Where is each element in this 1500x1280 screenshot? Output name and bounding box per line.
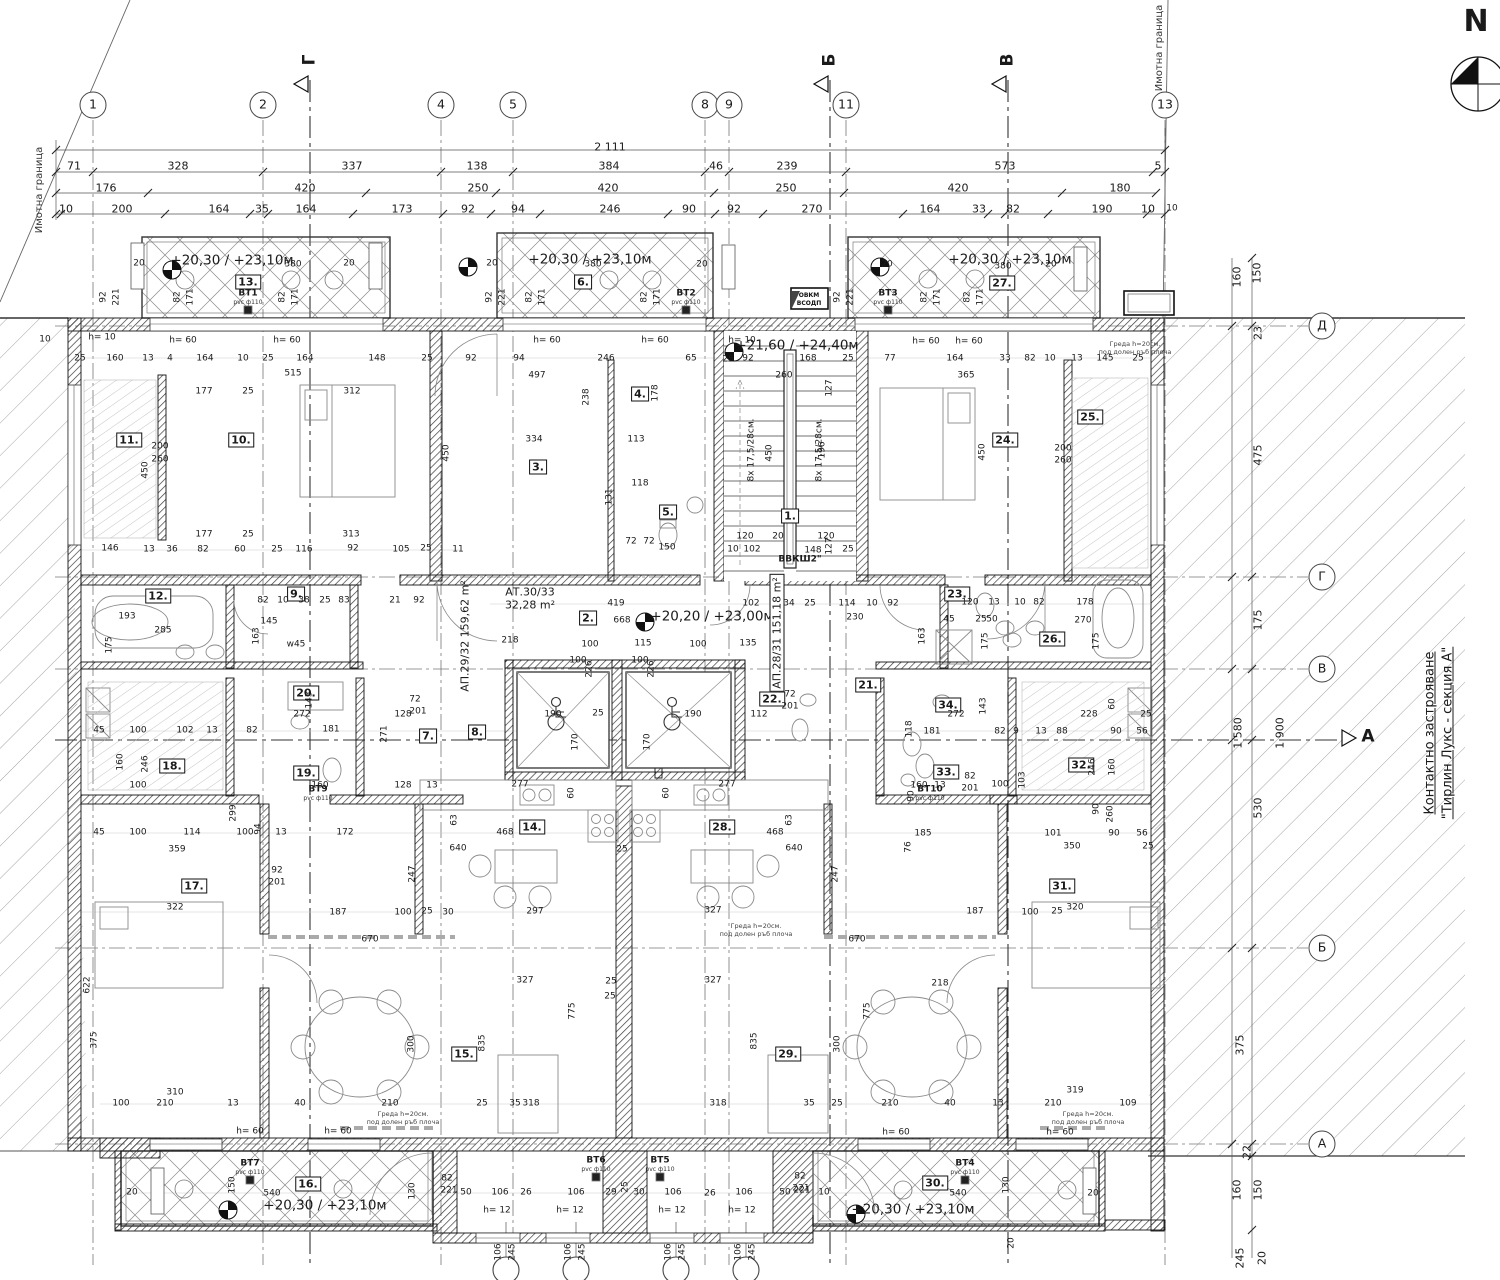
dimension-text: 72 (409, 696, 420, 705)
dimension-text: 177 (195, 531, 212, 540)
plan-label: pvc ф110 (233, 300, 262, 306)
dimension-text: 25 (842, 546, 853, 555)
dimension-text: 94 (513, 355, 524, 364)
dimension-text: 100 (991, 781, 1008, 790)
plan-label: Греда h=20см. (730, 923, 781, 930)
dimension-text: 228 (1080, 711, 1097, 720)
dimension-text: 299 (230, 804, 239, 821)
dimension-text: 310 (166, 1089, 183, 1098)
grid-marker: 13 (1152, 92, 1179, 119)
dimension-text: 164 (946, 355, 963, 364)
dimension-text: 246 (600, 204, 621, 215)
dimension-text: 210 (381, 1100, 398, 1109)
plan-label: ВТ9 (308, 786, 327, 795)
dimension-text: 272 (293, 711, 310, 720)
dimension-text: 13 (206, 727, 217, 736)
plan-label: ВТ3 (878, 290, 897, 299)
dimension-text: 92 (887, 600, 898, 609)
dimension-text: 82 (279, 291, 288, 302)
room-number: 8. (468, 725, 486, 740)
room-number: 2. (579, 611, 597, 626)
dimension-text: 90 (1093, 803, 1102, 814)
dimension-text: 10 (1044, 355, 1055, 364)
dimension-text: 106 (495, 1243, 504, 1260)
dimension-text: 250 (468, 183, 489, 194)
room-number: 18. (159, 759, 185, 774)
dimension-text: 25 (421, 908, 432, 917)
dimension-text: 170 (644, 733, 653, 750)
dimension-text: 60 (234, 546, 245, 555)
dimension-text: 160 (1109, 758, 1118, 775)
dimension-text: 25 (804, 600, 815, 609)
dimension-text: 13 (227, 1100, 238, 1109)
plan-label: pvc ф110 (235, 1170, 264, 1176)
dimension-text: 25 (831, 1100, 842, 1109)
dimension-text: 120 (736, 533, 753, 542)
dimension-text: 25 (1051, 908, 1062, 917)
dimension-text: 82 (641, 291, 650, 302)
plan-label: Греда h=20см. (1109, 341, 1160, 348)
dimension-text: 4 (167, 355, 173, 364)
room-number: 3. (529, 460, 547, 475)
dimension-text: 175 (106, 636, 115, 653)
dimension-text: 9 (1013, 728, 1019, 737)
grid-marker: Д (1309, 313, 1336, 340)
dimension-text: 30 (633, 1189, 644, 1198)
plan-label: Имотна граница (1155, 5, 1165, 92)
dimension-text: 277 (511, 781, 528, 790)
plan-label: ОВКМ (799, 293, 820, 299)
dimension-text: 60 (1109, 698, 1118, 709)
plan-label: pvc ф110 (950, 1170, 979, 1176)
dimension-text: 176 (96, 183, 117, 194)
dimension-text: 71 (67, 161, 81, 172)
dimension-text: 327 (704, 907, 721, 916)
plan-label: +21,60 / +24,40м (735, 339, 858, 353)
dimension-text: 82 (964, 291, 973, 302)
dimension-text: 90 (1110, 728, 1121, 737)
dimension-text: 164 (296, 204, 317, 215)
plan-label: Греда h=20см. (377, 1111, 428, 1118)
room-number: 31. (1049, 879, 1075, 894)
dimension-text: 221 (499, 288, 508, 305)
dimension-text: 40 (944, 1100, 955, 1109)
dimension-text: 210 (1044, 1100, 1061, 1109)
dimension-text: 65 (685, 355, 696, 364)
dimension-text: 190 (544, 711, 561, 720)
dimension-text: 775 (864, 1002, 873, 1019)
dimension-text: 530 (1253, 798, 1264, 819)
dimension-text: 1 580 (1233, 717, 1244, 749)
dimension-text: 82 (994, 728, 1005, 737)
plan-label: Греда h=20см. (1062, 1111, 1113, 1118)
dimension-text: 118 (906, 720, 915, 737)
dimension-text: 318 (522, 1100, 539, 1109)
dimension-text: 277 (718, 781, 735, 790)
dimension-text: 120 (817, 533, 834, 542)
dimension-text: 670 (848, 936, 865, 945)
dimension-text: 10 (1141, 204, 1155, 215)
plan-label: под долен ръб плоча (367, 1119, 440, 1126)
dimension-text: 100 (581, 641, 598, 650)
plan-label: АТ.30/33 (505, 587, 554, 598)
dimension-text: 72 (625, 538, 636, 547)
dimension-text: 171 (977, 288, 986, 305)
dimension-text: h= 60 (324, 1128, 352, 1137)
dimension-text: 150 (1252, 263, 1263, 284)
plan-label: pvc ф110 (303, 796, 332, 802)
dimension-text: 105 (392, 546, 409, 555)
dimension-text: 106 (491, 1189, 508, 1198)
dimension-text: 328 (168, 161, 189, 172)
dimension-text: 106 (567, 1189, 584, 1198)
dimension-text: 82 (246, 727, 257, 736)
dimension-text: 103 (1019, 771, 1028, 788)
dimension-text: 260 (1054, 457, 1071, 466)
dimension-text: 171 (539, 288, 548, 305)
dimension-text: 221 (847, 288, 856, 305)
dimension-text: 130 (1003, 1176, 1012, 1193)
dimension-text: 50 (779, 1189, 790, 1198)
dimension-text: 88 (1056, 728, 1067, 737)
dimension-text: 115 (634, 640, 651, 649)
dimension-text: 13 (426, 782, 437, 791)
dimension-text: 218 (501, 637, 518, 646)
dimension-text: 193 (118, 613, 135, 622)
dimension-text: 181 (923, 728, 940, 737)
dimension-text: h= 60 (1046, 1129, 1074, 1138)
dimension-text: 270 (802, 204, 823, 215)
dimension-text: 11 (452, 546, 463, 555)
plan-label: +20,30 / +23,10м (851, 1203, 974, 1217)
dimension-text: 29 (605, 1189, 616, 1198)
dimension-text: 100 (129, 727, 146, 736)
dimension-text: 82 (794, 1173, 805, 1182)
dimension-text: 313 (342, 531, 359, 540)
dimension-text: 540 (949, 1190, 966, 1199)
plan-label: 32,28 m² (505, 600, 555, 611)
dimension-text: 13 (1071, 355, 1082, 364)
dimension-text: 114 (838, 600, 855, 609)
dimension-text: 835 (751, 1032, 760, 1049)
dimension-text: 13 (275, 829, 286, 838)
dimension-text: 515 (284, 370, 301, 379)
dimension-text: 668 (613, 617, 630, 626)
dimension-text: 20 (1257, 1251, 1268, 1265)
dimension-text: 60 (568, 787, 577, 798)
dimension-text: 100 (236, 829, 253, 838)
plan-label: pvc ф110 (581, 1167, 610, 1173)
dimension-text: 375 (91, 1031, 100, 1048)
room-number: 12. (145, 589, 171, 604)
dimension-text: 163 (919, 627, 928, 644)
dimension-text: 102 (743, 546, 760, 555)
dimension-text: 171 (187, 288, 196, 305)
dimension-text: 13 (988, 599, 999, 608)
dimension-text: 106 (665, 1243, 674, 1260)
dimension-text: 92 (465, 355, 476, 364)
plan-label: АП.28/31 151,18 m² (770, 574, 785, 692)
dimension-text: 90 (682, 204, 696, 215)
room-number: 10. (228, 433, 254, 448)
plan-label: pvc ф110 (915, 796, 944, 802)
dimension-text: 118 (631, 480, 648, 489)
room-number: 13. (235, 275, 261, 290)
dimension-text: 160 (1232, 1180, 1243, 1201)
dimension-text: 320 (1066, 904, 1083, 913)
dimension-text: h= 60 (169, 337, 197, 346)
dimension-text: 26 (704, 1190, 715, 1199)
dimension-text: 334 (525, 436, 542, 445)
dimension-text: 83 (338, 597, 349, 606)
dimension-text: 92 (413, 597, 424, 606)
dimension-text: 56 (1136, 830, 1147, 839)
dimension-text: 100 (112, 1100, 129, 1109)
dimension-text: 130 (409, 1182, 418, 1199)
dimension-text: 150 (1253, 1180, 1264, 1201)
elevators (517, 672, 731, 768)
dimension-text: 25 (592, 710, 603, 719)
plan-label: А (1361, 729, 1374, 746)
dimension-text: 1 900 (1275, 717, 1286, 749)
dimension-text: 245 (579, 1243, 588, 1260)
dimension-text: 25 (319, 597, 330, 606)
dimension-text: 327 (516, 977, 533, 986)
dimension-text: 171 (292, 288, 301, 305)
dimension-text: 25 (476, 1100, 487, 1109)
grid-marker: 11 (833, 92, 860, 119)
dimension-text: 25 (271, 546, 282, 555)
plan-label: АП.29/32 159,62 m² (460, 580, 471, 692)
dimension-text: 181 (322, 726, 339, 735)
dimension-text: 178 (652, 384, 661, 401)
dimension-text: 60 (663, 787, 672, 798)
dimension-text: h= 10 (88, 334, 116, 343)
dimension-text: 319 (1066, 1087, 1083, 1096)
dimension-text: 100 (689, 641, 706, 650)
dimension-text: 63 (451, 814, 460, 825)
dimension-text: 20 (1087, 1190, 1098, 1199)
dimension-text: 200 (112, 204, 133, 215)
plan-label: "Тирлин Лукс - секция А" (1442, 647, 1455, 820)
dimension-text: 163 (253, 627, 262, 644)
plan-label: Контактно застрояване (1424, 652, 1437, 815)
dimension-text: 25 (420, 545, 431, 554)
dimension-text: h= 12 (483, 1207, 511, 1216)
dimension-text: 25 (622, 1181, 631, 1192)
dimension-text: 775 (569, 1002, 578, 1019)
dimension-text: 38 (298, 597, 309, 606)
dimension-text: 143 (306, 691, 315, 708)
dimension-text: 26 (520, 1189, 531, 1198)
dimension-text: 100 (394, 909, 411, 918)
dimension-text: 63 (786, 814, 795, 825)
dimension-text: 114 (183, 829, 200, 838)
dimension-text: 173 (392, 204, 413, 215)
dimension-text: 175 (1253, 610, 1264, 631)
dimension-text: 120 (961, 599, 978, 608)
dimension-text: 210 (881, 1100, 898, 1109)
dimension-text: 210 (156, 1100, 173, 1109)
dimension-text: 250 (776, 183, 797, 194)
plan-label: +20,30 / +23,10м (170, 254, 293, 268)
dimension-text: 177 (195, 388, 212, 397)
plan-label: ВТ2 (676, 290, 695, 299)
dimension-text: 420 (295, 183, 316, 194)
room-number: 1. (781, 509, 799, 524)
room-number: 21. (855, 678, 881, 693)
plan-label: +20,30 / +23,10м (528, 253, 651, 267)
dimension-text: 35 (803, 1100, 814, 1109)
dimension-text: 350 (1063, 843, 1080, 852)
dimension-text: 247 (409, 865, 418, 882)
grid-marker: В (1309, 656, 1336, 683)
plan-label: Б (822, 54, 839, 67)
dimension-text: 359 (168, 846, 185, 855)
dimension-text: 25 (1132, 355, 1143, 364)
plan-label: ВТ7 (240, 1160, 259, 1169)
dimension-text: 10 (277, 597, 288, 606)
dimension-text: 164 (920, 204, 941, 215)
dimension-text: 25 (242, 531, 253, 540)
grid-marker: 1 (80, 92, 107, 119)
dimension-text: 45 (93, 727, 104, 736)
dimension-text: 20 (772, 533, 783, 542)
dimension-text: 101 (1044, 830, 1061, 839)
grid-marker: 9 (716, 92, 743, 119)
dimension-text: 5 (1155, 161, 1162, 172)
dimension-text: 82 (1033, 599, 1044, 608)
dimension-text: 640 (449, 845, 466, 854)
room-number: 28. (709, 820, 735, 835)
dimension-text: 175 (1093, 632, 1102, 649)
dimension-text: 245 (679, 1243, 688, 1260)
dimension-text: 135 (739, 640, 756, 649)
dimension-text: 82 (964, 773, 975, 782)
dimension-text: 45 (93, 829, 104, 838)
dimension-text: 72 (784, 691, 795, 700)
dimension-text: 50 (986, 616, 997, 625)
room-number: 25. (1077, 410, 1103, 425)
dimension-text: 25 (1140, 711, 1151, 720)
dimension-text: 92 (742, 355, 753, 364)
dimension-text: 201 (268, 879, 285, 888)
plan-label: Г (302, 55, 319, 66)
dimension-text: 77 (884, 355, 895, 364)
dimension-text: 25 (616, 846, 627, 855)
dimension-text: 22 (1242, 1145, 1253, 1159)
dimension-text: 245 (509, 1243, 518, 1260)
dimension-text: 10 (237, 355, 248, 364)
room-number: 29. (775, 1047, 801, 1062)
dimension-text: 450 (142, 461, 151, 478)
dimension-text: 13 (143, 546, 154, 555)
dimension-text: 33 (999, 355, 1010, 364)
plan-label: ВТ6 (586, 1157, 605, 1166)
dimension-text: 450 (766, 444, 775, 461)
room-number: 5. (659, 505, 677, 520)
dimension-text: 148 (368, 355, 385, 364)
dimension-text: 185 (914, 830, 931, 839)
dimension-text: h= 60 (236, 1128, 264, 1137)
room-number: 33. (933, 765, 959, 780)
dimension-text: 475 (1253, 445, 1264, 466)
dimension-text: 20 (126, 1189, 137, 1198)
dimension-text: 82 (526, 291, 535, 302)
dimension-text: 246 (142, 755, 151, 772)
dimension-text: 312 (343, 388, 360, 397)
dimension-text: 200 (1054, 445, 1071, 454)
dimension-text: 21 (389, 597, 400, 606)
dimension-text: 670 (361, 936, 378, 945)
dimension-text: h= 12 (658, 1207, 686, 1216)
dimension-text: 138 (467, 161, 488, 172)
dimension-text: 145 (260, 618, 277, 627)
dimension-text: 36 (166, 546, 177, 555)
dimension-text: 20 (696, 261, 707, 270)
dimension-text: 171 (654, 288, 663, 305)
dimension-text: 150 (229, 1176, 238, 1193)
dimension-text: 113 (627, 436, 644, 445)
dimension-text: 25 (421, 355, 432, 364)
dimension-text: 10 (59, 204, 73, 215)
dimension-text: 640 (785, 845, 802, 854)
floor-plan-canvas: 1245891113 ДГВБА 13.6.27.11.10.3.4.5.1.2… (0, 0, 1500, 1280)
dimension-text: h= 12 (728, 1207, 756, 1216)
dimension-text: 420 (948, 183, 969, 194)
dimension-text: 260 (1107, 805, 1116, 822)
dimension-text: 90 (1108, 830, 1119, 839)
dimension-text: 187 (966, 908, 983, 917)
dimension-text: 20 (1008, 1237, 1017, 1248)
dimension-text: 146 (101, 545, 118, 554)
dimension-text: 384 (599, 161, 620, 172)
plan-label: 8x 17,5/28см. (748, 418, 757, 481)
dimension-text: 201 (409, 708, 426, 717)
grid-marker: Б (1309, 935, 1336, 962)
dimension-text: 92 (271, 867, 282, 876)
dimension-text: 109 (1119, 1100, 1136, 1109)
dimension-text: 318 (709, 1100, 726, 1109)
plan-label: под долен ръб плоча (1052, 1119, 1125, 1126)
dimension-text: 40 (294, 1100, 305, 1109)
room-number: 4. (631, 387, 649, 402)
dimension-text: 200 (151, 443, 168, 452)
dimension-text: 170 (572, 733, 581, 750)
dimension-text: w45 (287, 641, 306, 650)
dimension-text: 72 (643, 538, 654, 547)
dimension-text: 106 (565, 1243, 574, 1260)
dimension-text: 160 (106, 355, 123, 364)
dimension-text: 168 (799, 355, 816, 364)
dimension-text: 100 (129, 829, 146, 838)
dimension-text: 272 (947, 711, 964, 720)
dimension-text: 20 (486, 260, 497, 269)
dimension-text: 835 (479, 1034, 488, 1051)
dimension-text: 92 (100, 291, 109, 302)
dimension-text: 76 (905, 841, 914, 852)
plan-label: +20,30 / +23,10м (948, 253, 1071, 267)
dimension-text: 82 (1006, 204, 1020, 215)
dimension-text: 92 (486, 291, 495, 302)
dimension-text: 25 (605, 978, 616, 987)
plan-label: ВТ5 (650, 1157, 669, 1166)
dimension-text: 245 (1235, 1248, 1246, 1269)
dimension-text: 201 (961, 785, 978, 794)
dimension-text: 10 (39, 336, 50, 345)
dimension-text: 112 (750, 711, 767, 720)
dimension-text: 419 (607, 600, 624, 609)
